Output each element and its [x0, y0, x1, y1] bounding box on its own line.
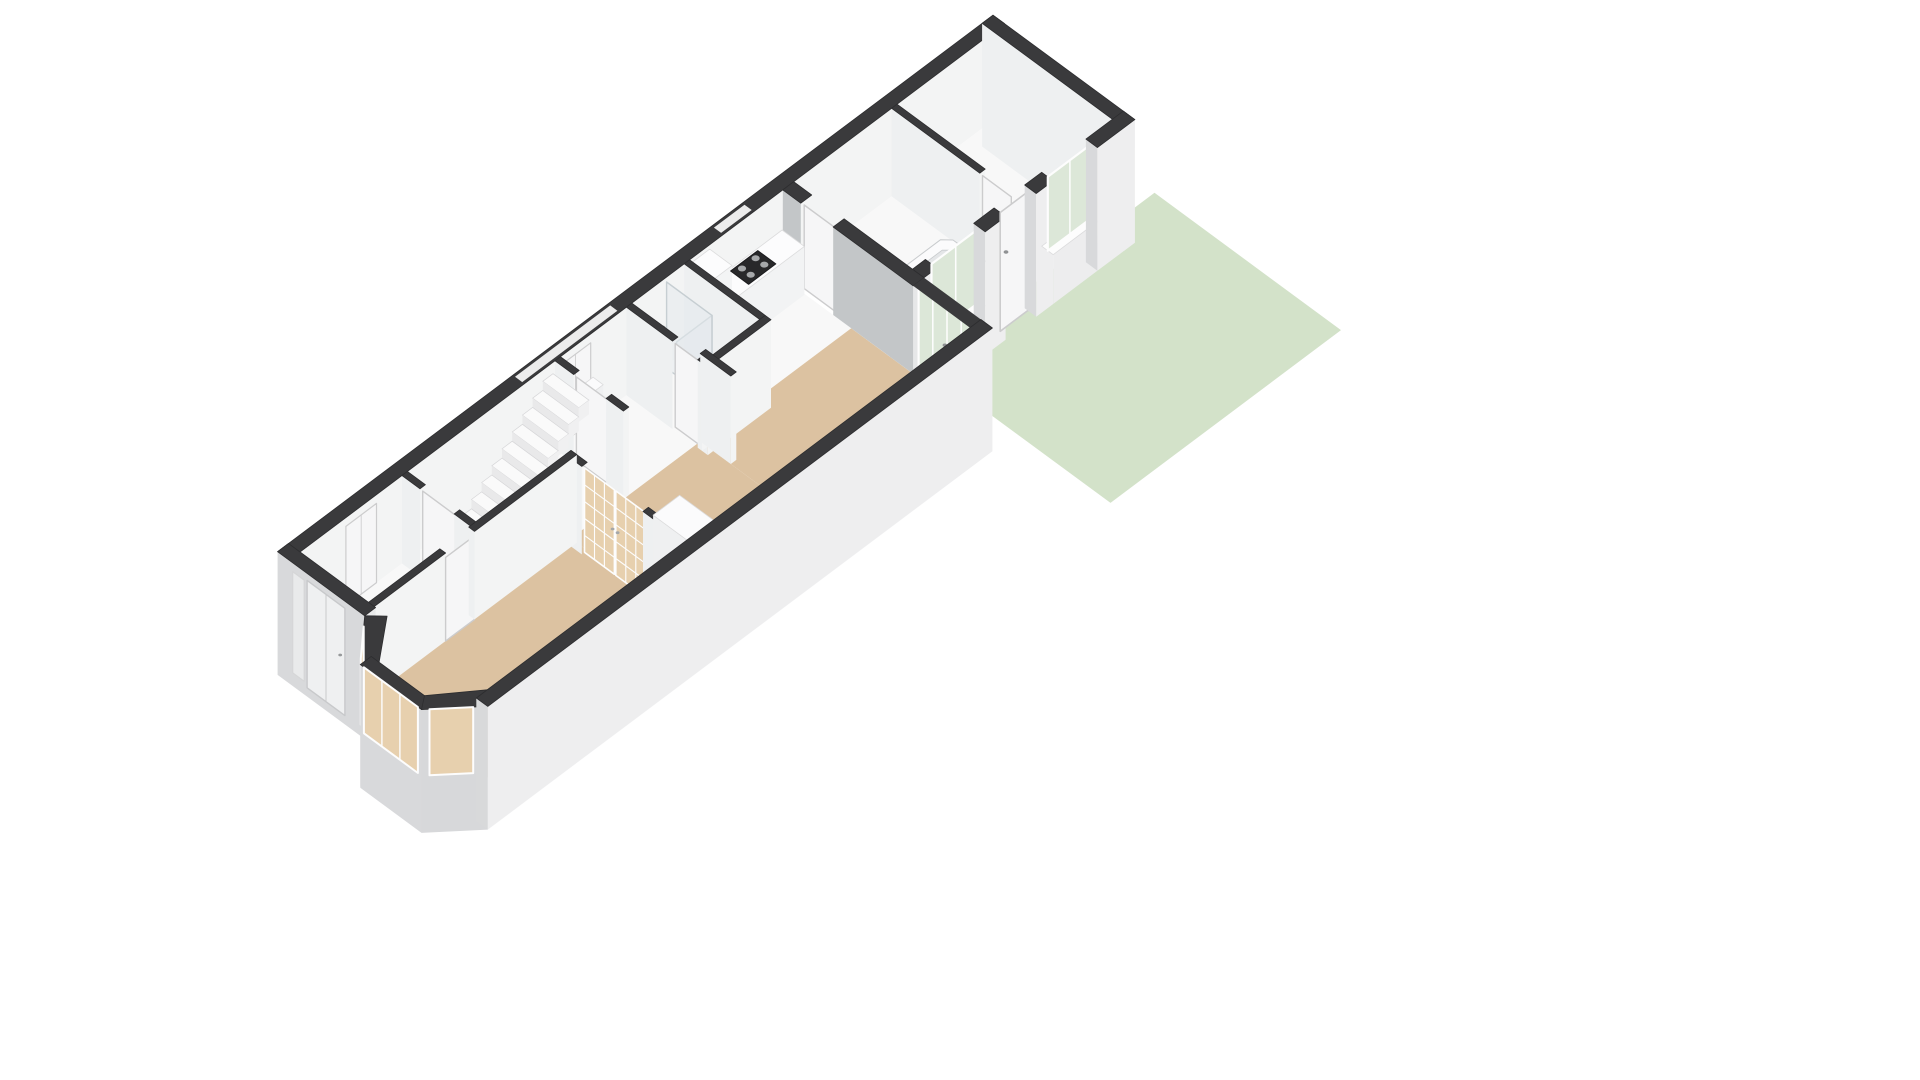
toilet-wall-b-face	[606, 398, 623, 499]
toilet-wall-b-side	[623, 407, 628, 499]
cooktop-burner-4	[760, 262, 768, 268]
hall-wall-a-face	[402, 476, 420, 577]
floorplan-3d-render	[0, 0, 1920, 1080]
cooktop-burner-3	[747, 272, 755, 278]
ensuite-door-handle-left	[611, 528, 615, 531]
cooktop-burner-2	[752, 255, 760, 261]
family-stub-wall-side	[731, 372, 737, 464]
ensuite-door-handle-right	[616, 531, 620, 534]
garden-wall-pier-4-face	[1086, 139, 1098, 271]
bay-window-right	[430, 707, 474, 775]
front-door-handle	[338, 654, 342, 657]
right-exterior-wall-face	[476, 698, 488, 830]
garden-door-handle	[1004, 250, 1009, 254]
shower-door	[675, 344, 700, 446]
garden-wall-pier-3-face	[1025, 185, 1037, 317]
front-sidelight	[293, 572, 305, 682]
floorplan-svg	[0, 0, 1920, 1080]
cooktop-burner-1	[738, 266, 746, 272]
living-hall-wall-b-face	[469, 527, 475, 619]
